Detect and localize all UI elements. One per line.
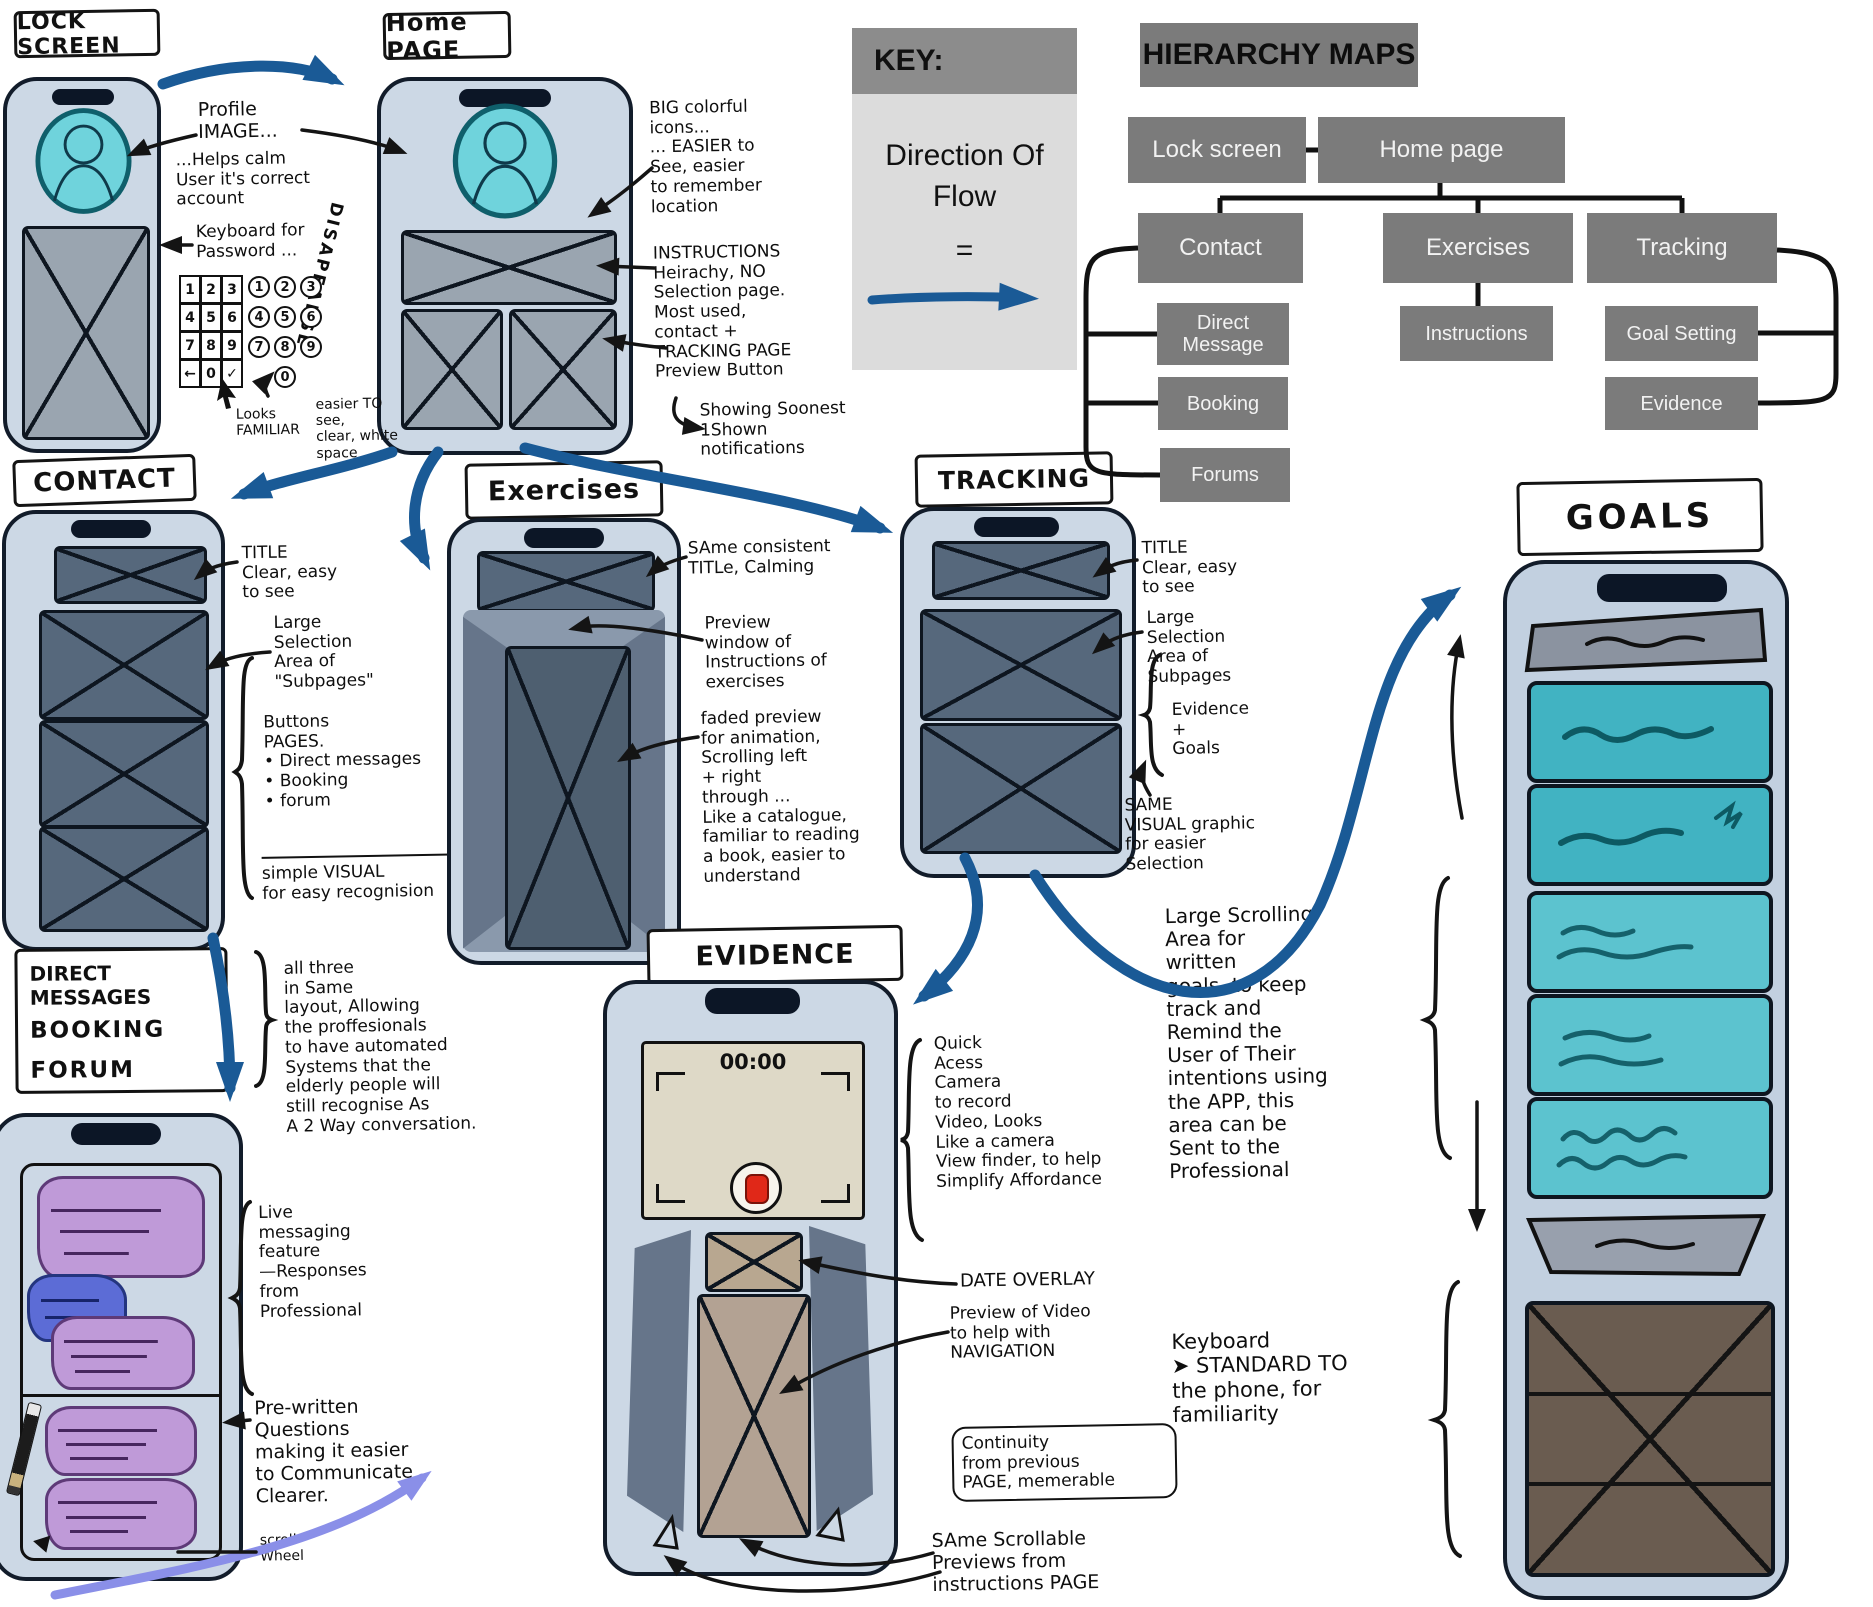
viewfinder-corner-icon [656, 1072, 685, 1091]
keypad-key: 2 [200, 275, 222, 304]
note-exercises-preview: Preview window of Instructions of exerci… [704, 612, 875, 694]
contact-label: CONTACT [12, 454, 197, 507]
goal-entry [1527, 681, 1773, 783]
note-scroll-wheel: scroll Wheel [260, 1531, 331, 1565]
note-date-overlay: DATE OVERLAY [960, 1268, 1150, 1292]
video-preview-area [625, 1222, 875, 1538]
note-profile-image: Profile IMAGE... [198, 97, 319, 143]
goal-text-squiggle [1531, 895, 1769, 989]
key-body-text: Direction Of Flow [852, 108, 1077, 217]
goal-text-squiggle [1531, 788, 1769, 882]
circle-key: 9 [300, 336, 322, 358]
goal-entry [1527, 1097, 1773, 1199]
prewritten-question-bubble [45, 1406, 197, 1476]
note-live-messaging: Live messaging feature —Responses from P… [258, 1202, 380, 1322]
arrow-tracking-to-evidence [924, 858, 978, 996]
hierarchy-node-lock-screen: Lock screen [1128, 117, 1306, 183]
instruction-preview-window [505, 646, 631, 950]
circle-key: 8 [274, 336, 296, 358]
faded-preview-left [463, 610, 507, 952]
recording-timer: 00:00 [644, 1050, 862, 1074]
standard-keyboard-placeholder [1525, 1301, 1775, 1577]
goal-entry [1527, 891, 1773, 993]
note-all-three-layout: all three in Same layout, Allowing the p… [283, 956, 496, 1137]
goals-label-text: GOALS [1565, 496, 1714, 539]
hierarchy-node-booking: Booking [1158, 377, 1288, 430]
circle-key: 5 [274, 306, 296, 328]
forum-button [39, 826, 209, 932]
keypad-key: 4 [179, 303, 201, 332]
goal-text-squiggle [1531, 685, 1769, 779]
messages-pages-label: DIRECT MESSAGES BOOKING FORUM [14, 947, 228, 1094]
hierarchy-node-contact: Contact [1138, 213, 1303, 283]
keypad-backspace-key: ← [179, 359, 201, 388]
scroll-down-banner [1525, 1212, 1767, 1278]
date-overlay-box [705, 1232, 803, 1292]
node-label: Evidence [1640, 393, 1722, 415]
evidence-button [920, 609, 1122, 721]
keypad-key: 0 [200, 359, 222, 388]
goal-text-squiggle [1531, 1101, 1769, 1195]
node-label: Direct Message [1165, 312, 1281, 356]
hierarchy-node-direct-message: Direct Message [1157, 303, 1289, 365]
note-contact-buttons: Buttons PAGES. • Direct messages • Booki… [263, 710, 440, 812]
key-equals: = [852, 217, 1077, 272]
circle-key: 2 [274, 276, 296, 298]
password-keypad-circles: 1 2 3 4 5 6 7 8 9 0 [248, 276, 324, 390]
note-tracking-evidence-goals: Evidence + Goals [1171, 699, 1282, 760]
instructions-preview-button [401, 230, 617, 305]
goals-label: GOALS [1516, 478, 1763, 556]
whiteboard-canvas: LOCK SCREEN Home PAGE Profile IMAGE... .… [0, 0, 1873, 1607]
page-title-placeholder [477, 551, 655, 612]
tracking-phone [900, 507, 1136, 878]
node-label: Home page [1379, 137, 1503, 163]
hierarchy-node-evidence: Evidence [1605, 377, 1758, 430]
note-tracking-selection: Large Selection Area of Subpages [1146, 607, 1267, 688]
goals-phone [1503, 560, 1789, 1600]
hierarchy-node-exercises: Exercises [1383, 213, 1573, 283]
note-same-scrollable: SAme Scrollable Previews from instructio… [931, 1526, 1162, 1596]
key-legend: KEY: Direction Of Flow = [852, 28, 1077, 370]
phone-notch [1597, 574, 1727, 602]
messages-label-line1: DIRECT MESSAGES [29, 960, 212, 1010]
exercises-phone [447, 518, 681, 965]
record-button [730, 1162, 782, 1214]
booking-button [39, 720, 209, 828]
hierarchy-node-home-page: Home page [1318, 117, 1565, 183]
profile-avatar-icon [430, 103, 580, 219]
evidence-label-text: EVIDENCE [695, 938, 855, 972]
goal-text-squiggle [1531, 998, 1769, 1092]
arrow-lock-to-home [163, 66, 332, 84]
note-continuity: Continuity from previous PAGE, memerable [951, 1423, 1177, 1502]
phone-notch [71, 520, 151, 538]
note-easier-to-see: easier TO see, clear, white space [315, 395, 416, 462]
tracking-label: TRACKING [915, 451, 1114, 507]
goal-entry [1527, 994, 1773, 1096]
keypad-key: 8 [200, 331, 222, 360]
tracking-page-button [509, 309, 617, 430]
node-label: Forums [1191, 464, 1259, 486]
hierarchy-node-goal-setting: Goal Setting [1605, 306, 1758, 361]
goals-scroll-up-arrow [1452, 642, 1462, 818]
home-page-label-text: Home PAGE [386, 6, 509, 64]
goal-entry [1527, 784, 1773, 886]
note-goals-keyboard: Keyboard ➤ STANDARD TO the phone, for fa… [1171, 1326, 1403, 1427]
goals-button [920, 723, 1122, 854]
placeholder-image [22, 226, 150, 440]
exercises-label-text: Exercises [488, 473, 641, 507]
exercises-label: Exercises [465, 460, 664, 519]
page-title-placeholder [54, 546, 207, 604]
faded-preview-left [627, 1230, 691, 1532]
phone-notch [71, 1123, 161, 1145]
messaging-phone [0, 1113, 243, 1581]
note-helps-calm: ...Helps calm User it's correct account [175, 149, 336, 211]
note-keyboard-password: Keyboard for Password ... [196, 221, 327, 263]
messages-label-line3: FORUM [30, 1056, 213, 1084]
note-contact-title: TITLE Clear, easy to see [241, 542, 392, 604]
node-label: Instructions [1425, 323, 1527, 345]
node-label: Lock screen [1152, 137, 1281, 163]
chat-bubble [37, 1176, 205, 1278]
lock-screen-label: LOCK SCREEN [14, 9, 161, 59]
evidence-label: EVIDENCE [647, 925, 904, 985]
phone-notch [974, 517, 1059, 537]
node-label: Tracking [1636, 235, 1727, 261]
note-exercises-faded: faded preview for animation, Scrolling l… [700, 706, 913, 887]
video-preview-box [697, 1294, 811, 1538]
note-goals-scrolling: Large Scrolling Area for written goals, … [1165, 901, 1415, 1183]
tracking-label-text: TRACKING [938, 464, 1091, 496]
note-quick-access-camera: Quick Acess Camera to record Video, Look… [934, 1031, 1147, 1192]
node-label: Booking [1187, 393, 1259, 415]
camera-viewfinder: 00:00 [641, 1041, 865, 1220]
contact-page-button [401, 309, 503, 430]
circle-key: 0 [274, 366, 296, 388]
node-label: Goal Setting [1626, 323, 1736, 345]
direct-messages-button [39, 610, 209, 720]
note-showing-notifications: Showing Soonest 1Shown notifications [699, 398, 890, 460]
note-prewritten: Pre-written Questions making it easier t… [254, 1395, 421, 1508]
messaging-panel [20, 1163, 222, 1561]
circle-key: 4 [248, 306, 270, 328]
circle-key: 3 [300, 276, 322, 298]
note-preview-of-video: Preview of Video to help with NAVIGATION [949, 1301, 1150, 1364]
keypad-key: 6 [221, 303, 243, 332]
page-title-placeholder [932, 541, 1110, 600]
pencil-icon [6, 1402, 42, 1497]
note-instructions-hierarchy: INSTRUCTIONS Heirachy, NO Selection page… [653, 241, 840, 382]
key-title: KEY: [874, 44, 943, 78]
note-big-icons: BIG colorful icons... ... EASIER to See,… [649, 97, 806, 218]
note-contact-selection: Large Selection Area of "Subpages" [273, 612, 394, 693]
hierarchy-node-forums: Forums [1160, 448, 1290, 502]
note-tracking-visual: SAME VISUAL graphic for easier Selection [1124, 793, 1305, 875]
edit-scribble-icon [1716, 806, 1741, 827]
lock-screen-label-text: LOCK SCREEN [17, 7, 158, 59]
prewritten-question-bubble [45, 1478, 197, 1550]
key-legend-body: Direction Of Flow = [852, 108, 1077, 272]
keypad-key: 5 [200, 303, 222, 332]
viewfinder-corner-icon [821, 1184, 850, 1203]
note-contact-visual: simple VISUAL for easy recognision [262, 853, 473, 904]
keypad-confirm-key: ✓ [221, 359, 243, 388]
circle-key: 1 [248, 276, 270, 298]
evidence-phone: 00:00 [603, 980, 898, 1576]
phone-notch [52, 89, 114, 105]
lock-screen-phone [3, 77, 161, 453]
note-exercises-title: SAme consistent TITLe, Calming [688, 536, 869, 579]
hierarchy-node-instructions: Instructions [1400, 306, 1553, 361]
password-keypad: 1 2 3 4 5 6 7 8 9 ← 0 ✓ [180, 276, 243, 388]
viewfinder-corner-icon [821, 1072, 850, 1091]
node-label: Exercises [1426, 235, 1530, 261]
viewfinder-corner-icon [656, 1184, 685, 1203]
hierarchy-node-tracking: Tracking [1587, 213, 1777, 283]
hierarchy-maps-title: HIERARCHY MAPS [1140, 23, 1418, 87]
arrow-home-to-exercises [415, 452, 438, 558]
record-button-red-icon [745, 1174, 769, 1204]
note-looks-familiar: Looks FAMILIAR [236, 405, 327, 439]
faded-preview-right [809, 1226, 873, 1531]
phone-notch [524, 528, 604, 548]
keypad-key: 3 [221, 275, 243, 304]
keypad-key: 1 [179, 275, 201, 304]
contact-label-text: CONTACT [33, 463, 177, 498]
circle-key: 7 [248, 336, 270, 358]
scroll-up-banner [1525, 608, 1767, 674]
phone-notch [705, 988, 800, 1014]
node-label: Contact [1179, 235, 1262, 261]
circle-key: 6 [300, 306, 322, 328]
home-page-label: Home PAGE [383, 11, 512, 60]
messages-label-line2: BOOKING [30, 1016, 213, 1044]
note-tracking-title: TITLE Clear, easy to see [1141, 537, 1297, 599]
chat-bubble [51, 1316, 195, 1390]
key-legend-header: KEY: [852, 28, 1077, 94]
profile-avatar-icon [35, 105, 132, 217]
hierarchy-maps-title-text: HIERARCHY MAPS [1143, 38, 1416, 72]
keypad-key: 9 [221, 331, 243, 360]
exercise-preview-area [463, 610, 665, 952]
keypad-key: 7 [179, 331, 201, 360]
panel-divider [23, 1394, 219, 1397]
contact-phone [2, 510, 225, 951]
